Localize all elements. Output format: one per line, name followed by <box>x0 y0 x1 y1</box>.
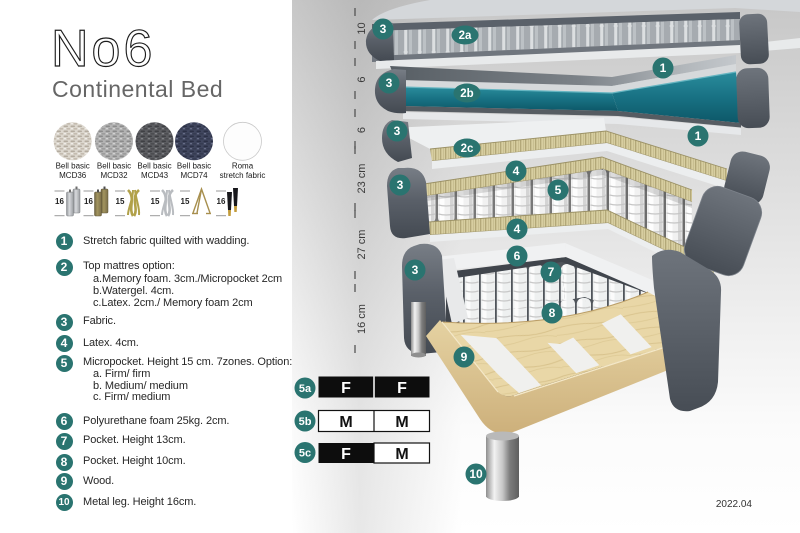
svg-text:2b: 2b <box>460 88 473 100</box>
svg-text:15: 15 <box>116 197 125 206</box>
svg-text:F: F <box>397 380 407 397</box>
svg-text:2c: 2c <box>461 143 474 155</box>
svg-text:Bell basic: Bell basic <box>177 162 211 171</box>
svg-text:10: 10 <box>469 467 483 481</box>
svg-text:4: 4 <box>514 222 521 236</box>
svg-text:F: F <box>341 446 351 463</box>
svg-text:2a: 2a <box>459 30 472 42</box>
svg-text:4: 4 <box>513 164 520 178</box>
svg-text:Bell basic: Bell basic <box>56 162 90 171</box>
svg-text:9: 9 <box>461 350 468 364</box>
svg-text:MCD32: MCD32 <box>100 171 128 180</box>
svg-text:5a: 5a <box>299 383 312 395</box>
svg-text:3: 3 <box>394 124 401 138</box>
svg-text:5: 5 <box>555 183 562 197</box>
svg-text:1: 1 <box>695 129 702 143</box>
svg-text:23 cm: 23 cm <box>356 164 368 194</box>
svg-text:3: 3 <box>380 22 387 36</box>
svg-text:MCD36: MCD36 <box>59 171 87 180</box>
svg-text:2022.04: 2022.04 <box>716 499 753 510</box>
svg-text:6: 6 <box>514 249 521 263</box>
svg-text:16: 16 <box>84 197 93 206</box>
svg-text:16: 16 <box>55 197 64 206</box>
svg-text:15: 15 <box>181 197 190 206</box>
svg-text:6: 6 <box>356 76 368 82</box>
svg-text:15: 15 <box>151 197 160 206</box>
svg-text:5b: 5b <box>299 416 312 428</box>
svg-text:M: M <box>395 414 408 431</box>
svg-text:16: 16 <box>217 197 226 206</box>
svg-text:6: 6 <box>356 127 368 133</box>
svg-text:M: M <box>339 414 352 431</box>
svg-text:5c: 5c <box>299 448 311 460</box>
svg-text:3: 3 <box>386 76 393 90</box>
svg-text:MCD74: MCD74 <box>180 171 208 180</box>
svg-text:M: M <box>395 446 408 463</box>
svg-text:27 cm: 27 cm <box>356 230 368 260</box>
svg-text:1: 1 <box>660 61 667 75</box>
svg-text:Bell basic: Bell basic <box>97 162 131 171</box>
svg-text:3: 3 <box>397 178 404 192</box>
svg-text:8: 8 <box>549 306 556 320</box>
svg-text:7: 7 <box>548 265 555 279</box>
svg-text:stretch fabric: stretch fabric <box>220 171 266 180</box>
svg-text:F: F <box>341 380 351 397</box>
svg-text:10: 10 <box>356 22 368 34</box>
svg-text:16 cm: 16 cm <box>356 304 368 334</box>
svg-text:Roma: Roma <box>232 162 254 171</box>
svg-text:Bell basic: Bell basic <box>137 162 171 171</box>
svg-text:3: 3 <box>412 263 419 277</box>
svg-text:MCD43: MCD43 <box>141 171 169 180</box>
